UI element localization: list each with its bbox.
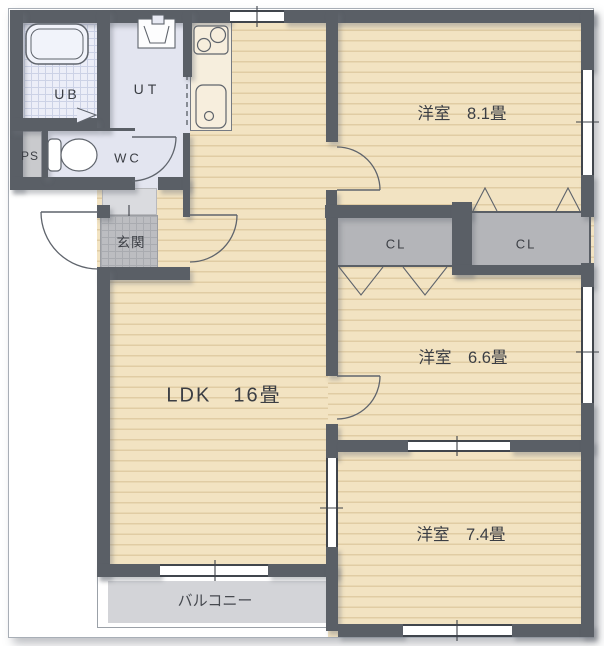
window-bedroom1-right <box>581 70 594 175</box>
window-top <box>230 10 284 23</box>
kitchen-counter <box>190 23 232 131</box>
room-ub-floor <box>24 24 97 120</box>
window-ldk-balcony <box>160 564 268 577</box>
room-label-balcony: バルコニー <box>178 590 253 611</box>
wall-genkan-bottom <box>97 267 190 280</box>
room-label-bedroom3: 洋室 7.4畳 <box>417 521 506 545</box>
wall-top-left <box>10 10 230 23</box>
wall-bedroom3-bottom-left <box>338 624 403 637</box>
wall-bedroom1-door-nub <box>326 190 337 206</box>
line-wc-top <box>42 128 135 131</box>
wall-left-upper <box>10 10 23 190</box>
wall-divider-low <box>326 424 338 458</box>
room-label-wc: WC <box>114 151 142 166</box>
room-label-bedroom1: 洋室 8.1畳 <box>418 100 507 124</box>
line-closet-right-top <box>472 211 581 213</box>
room-label-closet-right: CL <box>516 237 537 252</box>
wall-ut-kitchen <box>183 10 192 77</box>
wall-right-1 <box>581 10 594 70</box>
wall-divider-mid <box>326 218 338 376</box>
wall-genkan-nub <box>97 205 110 218</box>
wall-right-2 <box>581 175 594 217</box>
wall-corridor-right <box>183 133 190 217</box>
room-label-ut: UT <box>134 81 161 97</box>
wall-bedroom2-3-left <box>338 440 408 452</box>
room-label-bedroom2: 洋室 6.6畳 <box>419 344 508 368</box>
wall-utility-bottom-left <box>10 177 135 190</box>
line-closet-right-edge <box>589 215 591 265</box>
wall-right-4 <box>581 403 594 637</box>
window-bedroom2-3 <box>408 440 510 452</box>
window-bedroom2-right <box>581 287 594 403</box>
entrance-exterior <box>10 190 97 268</box>
wall-closet-right-bottom <box>452 265 589 275</box>
floorplan: UB UT PS WC 玄関 LDK 16畳 洋室 8.1畳 洋室 6.6畳 洋… <box>0 0 604 646</box>
room-label-ldk: LDK 16畳 <box>166 379 281 408</box>
room-label-ps: PS <box>21 149 39 163</box>
wall-closet-left-top <box>325 205 472 218</box>
room-label-genkan: 玄関 <box>117 231 146 251</box>
wall-ldk-bottom-left <box>97 564 160 577</box>
wall-divider-bottom <box>326 547 338 631</box>
wall-divider-top <box>326 10 338 142</box>
wall-ps-wc <box>42 131 48 178</box>
entrance-doormat <box>102 188 157 215</box>
room-label-closet-left: CL <box>386 237 407 252</box>
window-ldk-bedroom3 <box>326 458 338 547</box>
window-bedroom3-bottom <box>403 624 512 637</box>
wall-ldk-left <box>97 268 110 577</box>
room-label-ub: UB <box>54 86 79 102</box>
wall-ub-ut <box>97 10 110 131</box>
line-closet-left-bottom <box>337 265 452 267</box>
wall-right-3 <box>581 263 594 287</box>
